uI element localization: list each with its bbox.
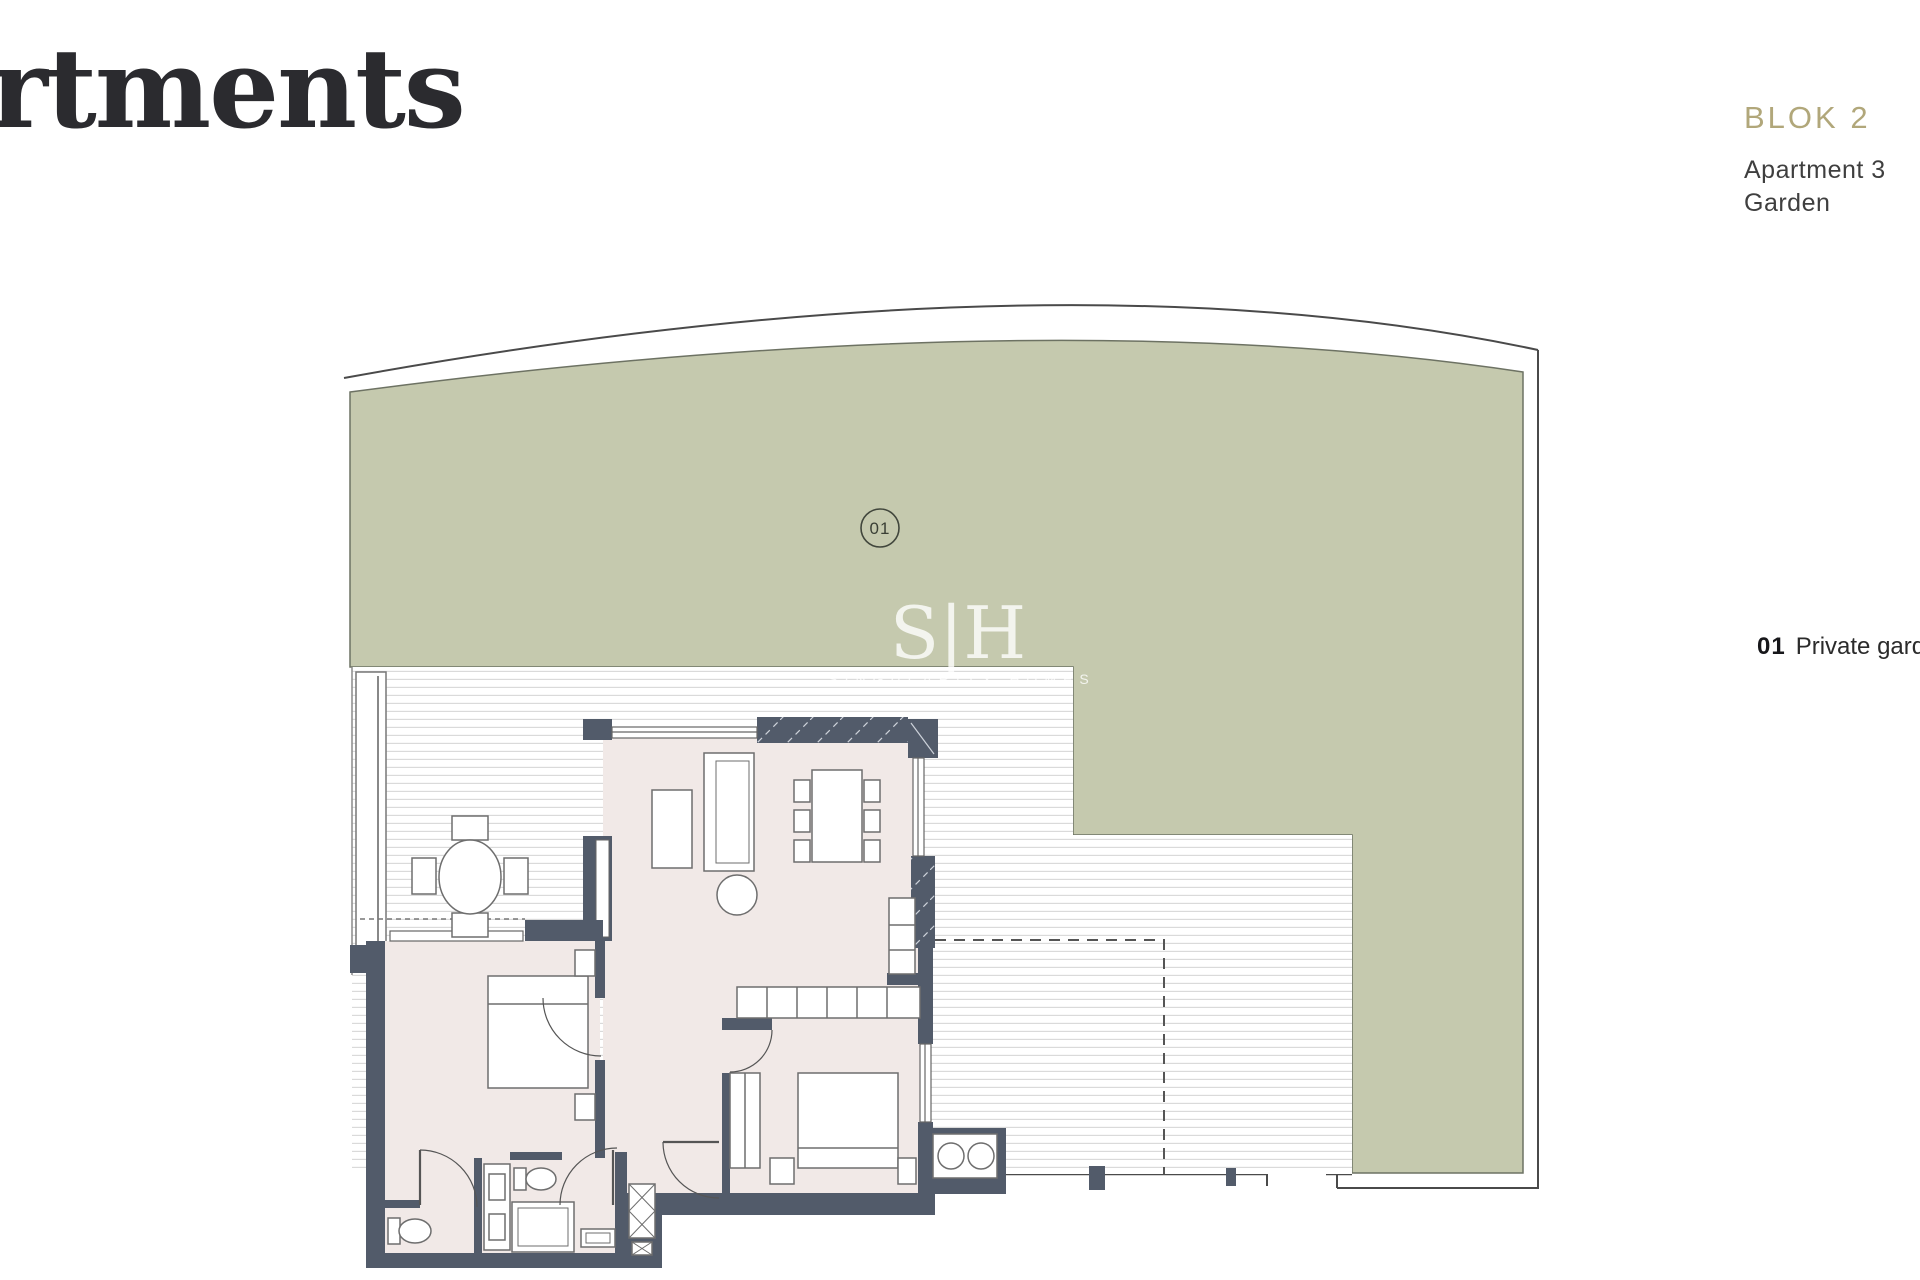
terrace-chair — [452, 816, 488, 840]
toilet-bowl — [399, 1219, 431, 1243]
terrace-chair — [452, 913, 488, 937]
wall — [722, 1073, 730, 1193]
terrace-table — [439, 840, 501, 914]
fence-post — [1226, 1168, 1236, 1186]
floor-plan: 01 S|H SINGULARITY HOMES — [0, 0, 1920, 1280]
bbq-burner — [968, 1143, 994, 1169]
wall — [617, 1193, 935, 1215]
nightstand — [575, 1094, 595, 1120]
bed — [488, 976, 588, 1088]
wall-beam — [757, 717, 908, 743]
wall — [474, 1158, 482, 1253]
dining-chair — [864, 840, 880, 862]
kitchen-counter-row — [737, 987, 920, 1018]
sofa — [704, 753, 754, 871]
pouf — [717, 875, 757, 915]
shower — [512, 1202, 574, 1252]
dining-chair — [864, 780, 880, 802]
dining-chair — [794, 810, 810, 832]
toilet-tank — [514, 1168, 526, 1190]
lounge-chair — [652, 790, 692, 868]
bed — [798, 1073, 898, 1168]
wall — [595, 941, 605, 998]
terrace-chair — [412, 858, 436, 894]
wall — [366, 1253, 662, 1268]
wall — [722, 1018, 772, 1030]
pergola-post — [1089, 1166, 1105, 1190]
nightstand — [575, 950, 595, 976]
dining-chair — [864, 810, 880, 832]
terrace-chair — [504, 858, 528, 894]
wall — [887, 973, 933, 985]
washer — [489, 1174, 505, 1200]
marker-code: 01 — [870, 519, 891, 538]
kitchen-counter-column — [889, 898, 915, 974]
toilet-bowl — [526, 1168, 556, 1190]
wall — [385, 1200, 420, 1208]
dining-chair — [794, 840, 810, 862]
terrace-glazing — [356, 672, 386, 968]
wall — [366, 941, 385, 1268]
dining-table — [812, 770, 862, 862]
wall — [595, 1060, 605, 1158]
bedroom2-furniture — [730, 1073, 916, 1184]
wall — [350, 945, 366, 973]
wall — [583, 719, 612, 740]
vent-shaft — [629, 1184, 655, 1238]
watermark-initials: S|H — [890, 591, 1026, 675]
watermark-name: SINGULARITY HOMES — [828, 671, 1095, 687]
outdoor-kitchen — [926, 1128, 1006, 1194]
wall — [525, 920, 603, 941]
living-room-floor — [603, 732, 923, 1018]
bbq-burner — [938, 1143, 964, 1169]
nightstand — [898, 1158, 916, 1184]
toilet-tank — [388, 1218, 400, 1244]
wall — [510, 1152, 562, 1160]
dryer — [489, 1214, 505, 1240]
dining-chair — [794, 780, 810, 802]
nightstand — [770, 1158, 794, 1184]
